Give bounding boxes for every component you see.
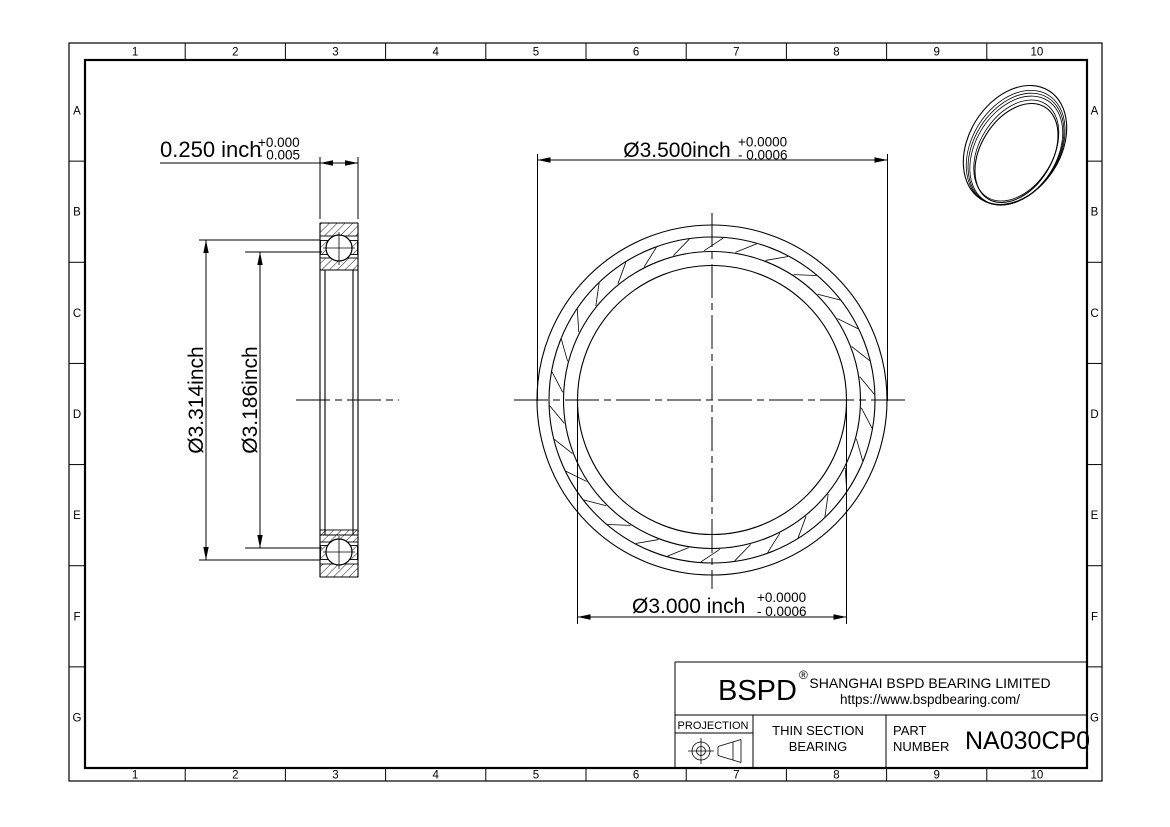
row-label-left: G [73, 712, 82, 724]
iso-view [942, 66, 1088, 223]
registered-mark: ® [799, 668, 808, 682]
row-label-right: A [1091, 106, 1099, 118]
cage-pocket-tick [550, 406, 565, 424]
column-label-top: 2 [232, 47, 238, 59]
row-label-right: G [1090, 712, 1099, 724]
product-type-line1: THIN SECTION [772, 723, 864, 738]
column-label-bottom: 9 [933, 770, 939, 782]
column-label-bottom: 7 [733, 770, 739, 782]
column-label-bottom: 6 [633, 770, 639, 782]
row-label-left: D [73, 409, 81, 421]
column-label-top: 7 [733, 47, 739, 59]
cage-pocket-tick [735, 244, 756, 253]
row-label-right: F [1091, 611, 1098, 623]
cage-pocket-tick [860, 377, 875, 395]
column-label-bottom: 1 [132, 770, 138, 782]
part-number-label-line2: NUMBER [893, 739, 949, 754]
column-label-top: 4 [432, 47, 439, 59]
row-label-left: C [73, 308, 81, 320]
cage-pocket-tick [766, 257, 789, 261]
column-label-bottom: 4 [432, 770, 439, 782]
cage-pocket-tick [825, 494, 828, 517]
cage-pocket-tick [768, 533, 780, 552]
column-label-bottom: 8 [833, 770, 839, 782]
dimension-bore-tol-plus: +0.0000 [757, 590, 806, 605]
product-type-line2: BEARING [789, 739, 848, 754]
row-label-right: B [1091, 207, 1099, 219]
row-label-left: E [73, 510, 81, 522]
row-label-left: F [73, 611, 80, 623]
column-label-top: 6 [633, 47, 639, 59]
engineering-drawing: 1122334455667788991010AABBCCDDEEFFGG [0, 0, 1170, 827]
part-number-label-line1: PART [893, 723, 927, 738]
column-label-top: 10 [1031, 47, 1044, 59]
cage-pocket-tick [701, 549, 720, 562]
company-website: https://www.bspdbearing.com/ [840, 692, 1020, 707]
cage-pocket-tick [856, 439, 862, 461]
title-block: BSPD ® SHANGHAI BSPD BEARING LIMITED htt… [675, 662, 1090, 768]
dimension-bore-tol-minus: - 0.0006 [757, 604, 807, 619]
row-label-left: B [73, 207, 81, 219]
row-label-right: D [1090, 409, 1098, 421]
cage-pocket-tick [608, 524, 631, 525]
company-name: SHANGHAI BSPD BEARING LIMITED [809, 675, 1050, 691]
part-number-value: NA030CP0 [965, 727, 1090, 755]
column-label-bottom: 2 [232, 770, 238, 782]
cage-pocket-tick [636, 540, 659, 544]
cage-pocket-tick [552, 372, 563, 392]
row-label-right: E [1091, 510, 1099, 522]
column-label-top: 3 [332, 47, 338, 59]
column-label-bottom: 10 [1031, 770, 1044, 782]
column-label-bottom: 3 [332, 770, 338, 782]
drawing-sheet: 1122334455667788991010AABBCCDDEEFFGG [0, 0, 1170, 827]
column-label-bottom: 5 [533, 770, 539, 782]
section-view [296, 223, 399, 577]
projection-label: PROJECTION [678, 720, 749, 732]
dimension-od-value: Ø3.500inch [623, 139, 730, 162]
cage-pocket-tick [704, 238, 723, 251]
row-label-right: C [1090, 308, 1098, 320]
column-label-top: 1 [132, 47, 138, 59]
dimension-width-tol-minus: - 0.005 [258, 148, 300, 163]
column-label-top: 8 [833, 47, 839, 59]
front-view [514, 213, 908, 589]
cage-pocket-tick [793, 275, 816, 276]
column-label-top: 9 [933, 47, 939, 59]
dimension-width-value: 0.250 inch [160, 137, 262, 162]
cage-pocket-tick [837, 319, 858, 329]
cage-pocket-tick [577, 309, 579, 332]
cage-pocket-tick [667, 548, 688, 557]
dimension-od-tol-minus: - 0.0006 [738, 148, 788, 163]
cage-pocket-tick [596, 283, 599, 306]
cage-pocket-tick [566, 471, 587, 481]
brand-logo: BSPD [718, 675, 797, 707]
third-angle-projection-icon [688, 738, 741, 764]
dimension-outer-race-value: Ø3.314inch [185, 346, 208, 453]
row-label-left: A [73, 106, 81, 118]
dimension-bore-value: Ø3.000 inch [632, 595, 745, 618]
dimension-width: 0.250 inch +0.000 - 0.005 [160, 135, 358, 219]
cage-pocket-tick [644, 247, 656, 266]
cage-pocket-tick [861, 408, 872, 428]
column-label-top: 5 [533, 47, 539, 59]
dimension-inner-race-value: Ø3.186inch [239, 346, 262, 453]
cage-pocket-tick [561, 339, 567, 361]
